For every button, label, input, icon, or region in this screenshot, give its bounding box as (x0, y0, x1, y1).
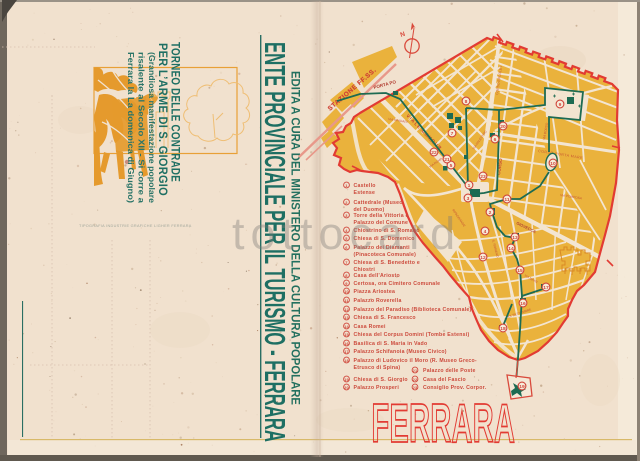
svg-text:Palazzo Roverella: Palazzo Roverella (354, 298, 402, 304)
svg-text:9: 9 (559, 102, 562, 108)
svg-text:Basilica di S. Maria in Vado: Basilica di S. Maria in Vado (354, 341, 428, 347)
svg-text:Palazzo delle Poste: Palazzo delle Poste (423, 368, 476, 374)
svg-text:Palazzo Schifanoia (Museo Civi: Palazzo Schifanoia (Museo Civico) (354, 349, 447, 355)
svg-text:6: 6 (494, 137, 497, 143)
svg-text:Certosa, ora Cimitero Comunale: Certosa, ora Cimitero Comunale (354, 281, 441, 287)
svg-text:Etrusco di Spina): Etrusco di Spina) (354, 365, 401, 371)
svg-text:Casa dell'Ariosto: Casa dell'Ariosto (354, 273, 400, 279)
svg-text:1: 1 (468, 183, 471, 189)
svg-text:Chiesa di S. Giorgio: Chiesa di S. Giorgio (354, 377, 408, 383)
svg-text:Consiglio Prov. Corpor.: Consiglio Prov. Corpor. (423, 385, 487, 391)
svg-text:14: 14 (344, 324, 349, 329)
svg-text:risalente al Secolo XII - Si c: risalente al Secolo XII - Si corre a (136, 52, 145, 204)
svg-text:tottocard: tottocard (232, 208, 461, 259)
svg-text:17: 17 (344, 349, 349, 354)
svg-text:14: 14 (508, 246, 514, 252)
svg-text:Chiesa del Corpus Domini (Tomb: Chiesa del Corpus Domini (Tombe Estensi) (354, 332, 470, 338)
svg-text:Casa Romei: Casa Romei (354, 324, 387, 330)
svg-text:15: 15 (344, 332, 349, 337)
svg-text:16: 16 (520, 301, 526, 307)
svg-text:10: 10 (550, 161, 556, 167)
svg-text:Palazzo del Paradiso (Bibliote: Palazzo del Paradiso (Biblioteca Comunal… (354, 307, 472, 313)
svg-text:16: 16 (344, 341, 349, 346)
svg-text:Castello: Castello (354, 183, 376, 189)
svg-text:10: 10 (344, 289, 349, 294)
svg-text:Chiesa di S. Benedetto e: Chiesa di S. Benedetto e (354, 260, 421, 266)
svg-text:(Grandiosa manifestazione popo: (Grandiosa manifestazione popolare (147, 52, 156, 204)
svg-text:PER L’ARME DI S. GIORGIO: PER L’ARME DI S. GIORGIO (156, 43, 168, 196)
svg-text:8: 8 (465, 99, 468, 105)
svg-text:20: 20 (500, 124, 506, 130)
svg-text:4: 4 (484, 229, 487, 235)
svg-text:Casa del Fascio: Casa del Fascio (423, 377, 466, 383)
svg-text:18: 18 (344, 358, 349, 363)
svg-text:FERRARA: FERRARA (372, 393, 516, 454)
svg-text:22: 22 (431, 150, 437, 156)
svg-text:17: 17 (543, 285, 549, 291)
svg-text:Ferrara la La domenica di Giug: Ferrara la La domenica di Giugno) (126, 52, 135, 203)
svg-text:7: 7 (345, 260, 347, 265)
svg-text:Chiesa di S. Francesco: Chiesa di S. Francesco (354, 315, 416, 321)
svg-text:Cattedrale (Museo: Cattedrale (Museo (354, 200, 403, 206)
svg-text:19: 19 (519, 384, 525, 390)
svg-text:12: 12 (480, 255, 486, 261)
svg-text:2: 2 (489, 210, 492, 216)
svg-text:11: 11 (344, 298, 349, 303)
svg-text:TIPOGRAFIA INDUSTRIE GRAFICHE: TIPOGRAFIA INDUSTRIE GRAFICHE LIGHER FER… (79, 224, 192, 228)
svg-text:3: 3 (467, 196, 470, 202)
svg-text:13: 13 (344, 315, 349, 320)
svg-text:19: 19 (344, 377, 349, 382)
svg-text:7: 7 (451, 131, 454, 137)
svg-text:Palazzo di Ludovico il Moro (R: Palazzo di Ludovico il Moro (R. Museo Gr… (354, 358, 477, 364)
svg-text:21: 21 (444, 157, 450, 163)
svg-text:TORNEO DELLE CONTRADE: TORNEO DELLE CONTRADE (168, 42, 180, 182)
svg-text:22: 22 (413, 377, 418, 382)
svg-text:23: 23 (413, 385, 418, 390)
svg-text:23: 23 (480, 174, 486, 180)
svg-text:Palazzo Prosperi: Palazzo Prosperi (354, 385, 400, 391)
svg-text:Piazza Ariostea: Piazza Ariostea (354, 289, 396, 295)
svg-text:12: 12 (344, 307, 349, 312)
svg-text:Estense: Estense (354, 190, 376, 196)
svg-text:5: 5 (450, 163, 453, 169)
svg-text:21: 21 (413, 368, 418, 373)
svg-text:13: 13 (512, 235, 518, 241)
svg-text:18: 18 (500, 326, 506, 332)
svg-text:15: 15 (517, 268, 523, 274)
svg-text:20: 20 (344, 385, 349, 390)
svg-text:11: 11 (504, 197, 509, 203)
